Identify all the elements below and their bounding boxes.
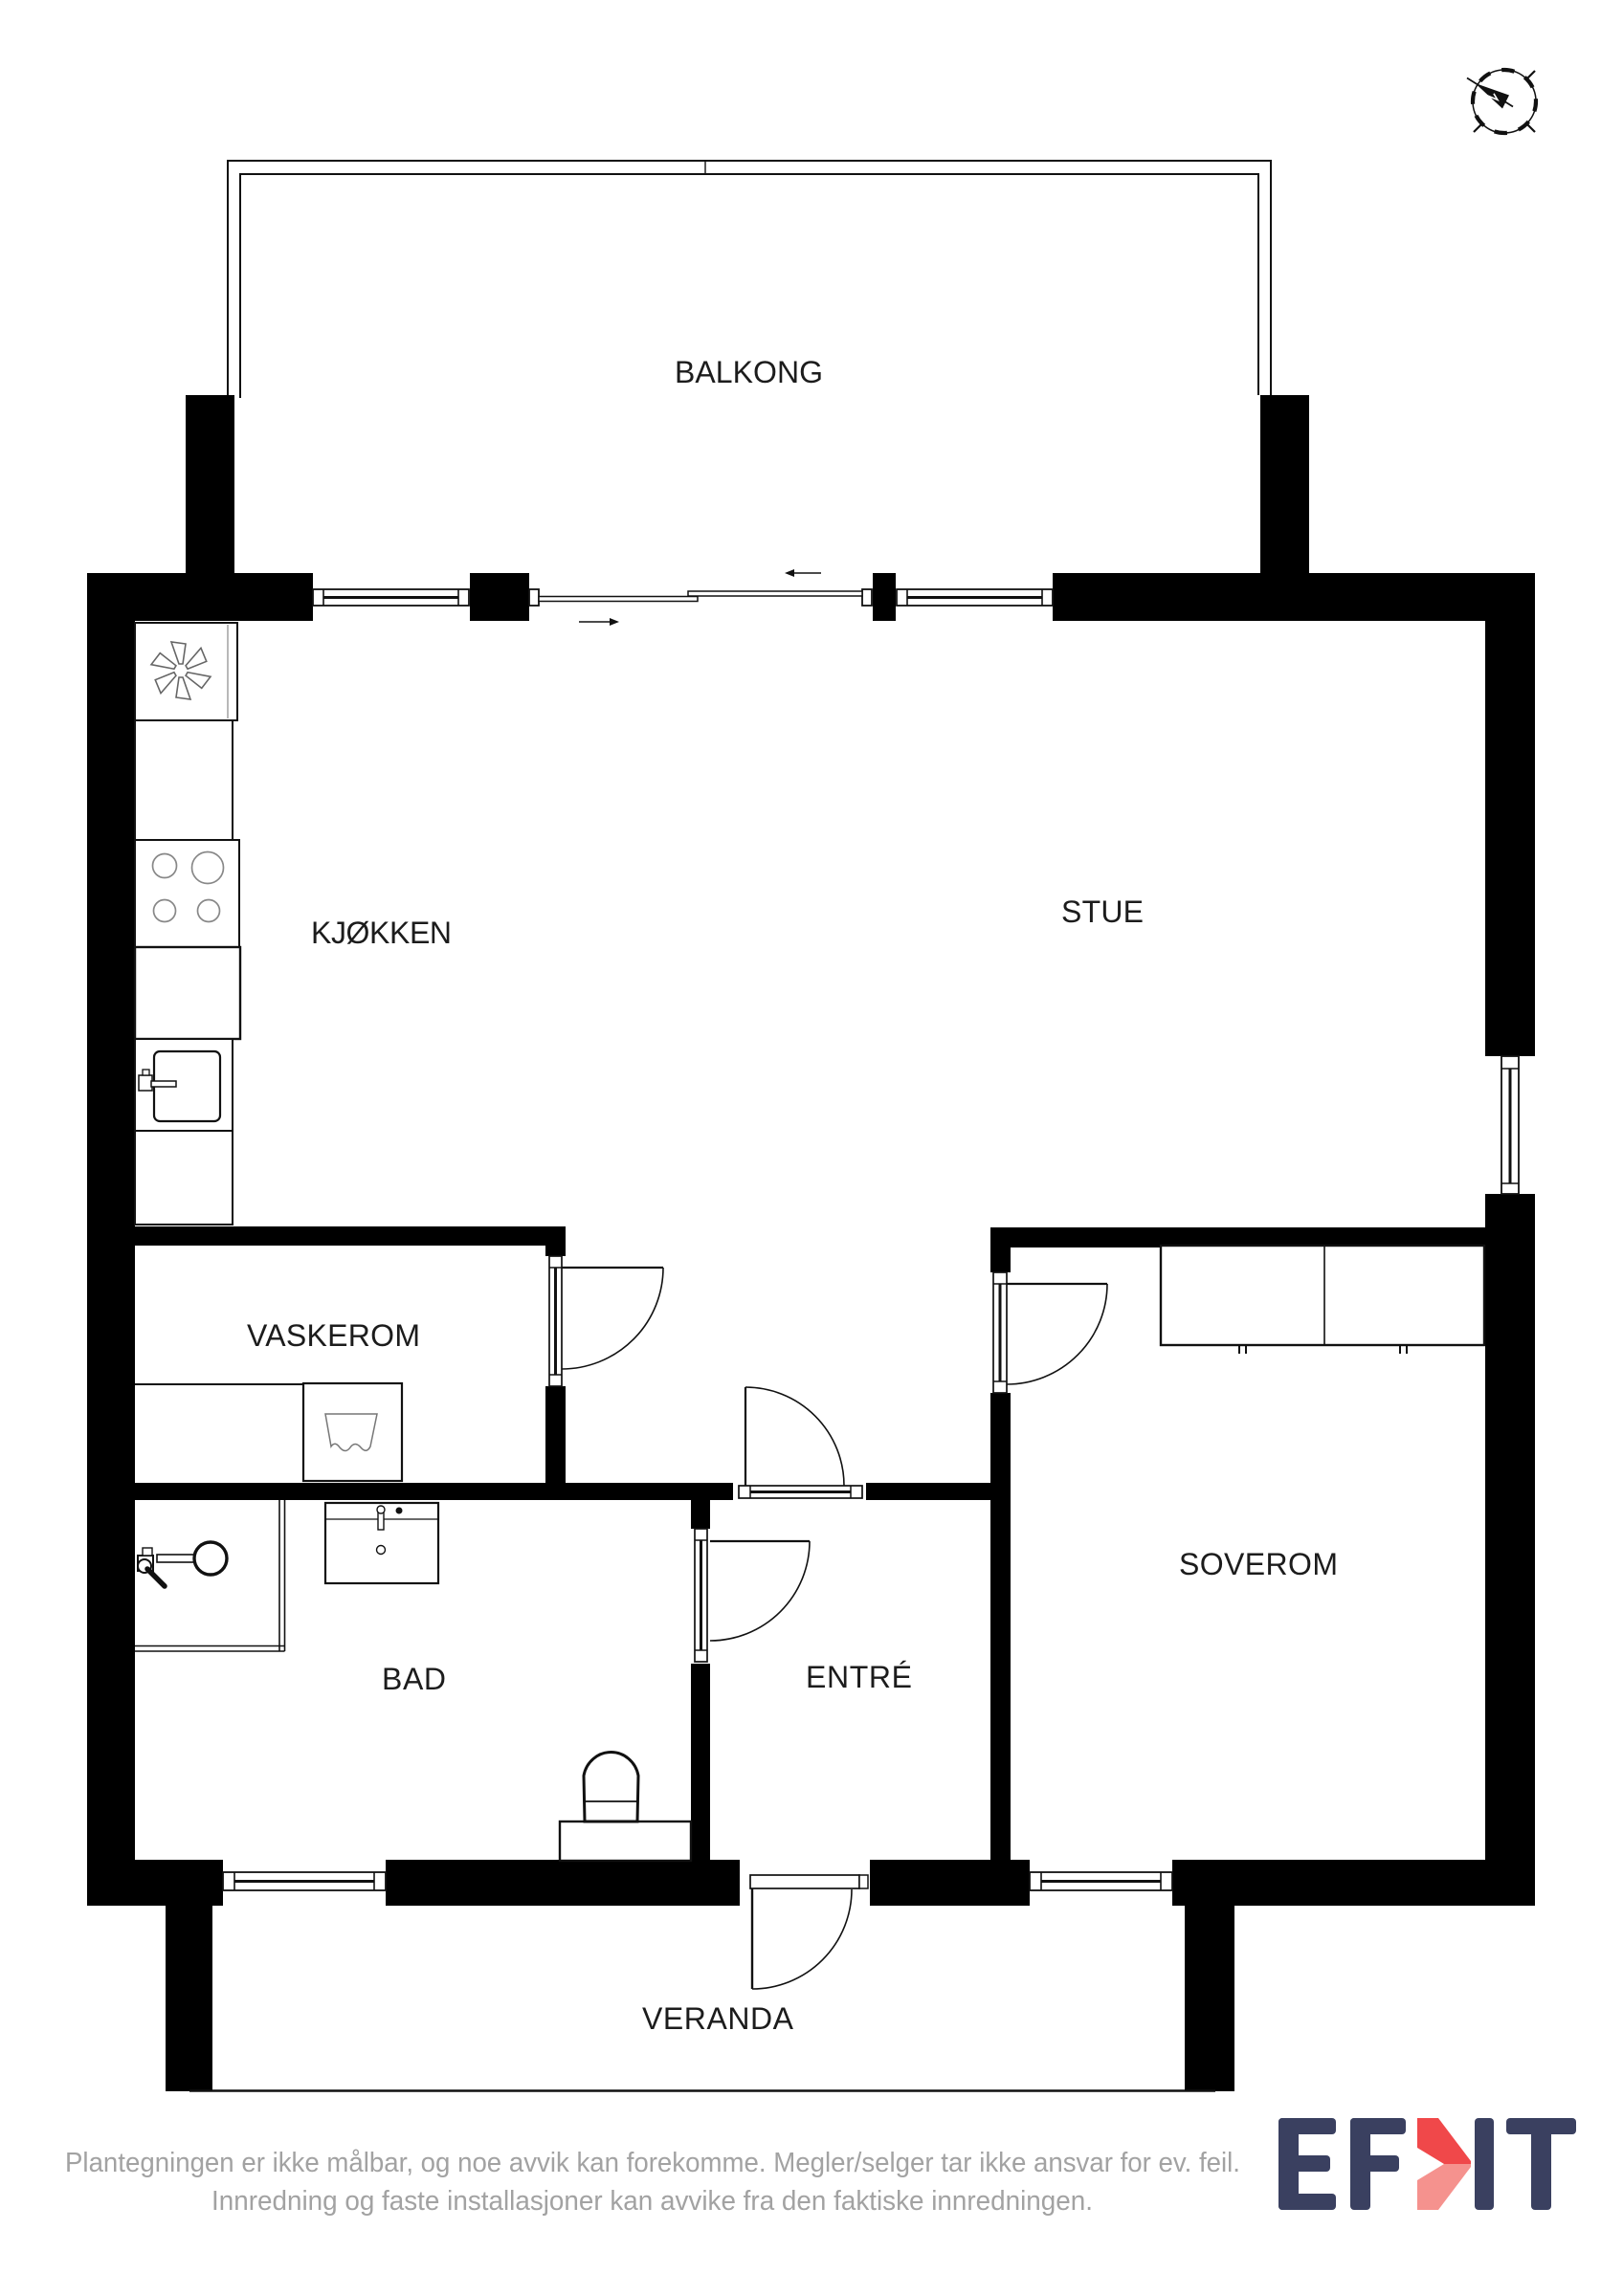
svg-text:VERANDA: VERANDA [642,2001,794,2036]
svg-text:STUE: STUE [1061,894,1144,929]
svg-text:BALKONG: BALKONG [675,355,823,389]
svg-text:ENTRÉ: ENTRÉ [806,1660,912,1694]
svg-text:Plantegningen er ikke målbar,: Plantegningen er ikke målbar, og noe avv… [65,2148,1240,2178]
svg-text:KJØKKEN: KJØKKEN [311,916,452,950]
svg-text:VASKEROM: VASKEROM [247,1318,420,1353]
svg-text:Innredning og faste installasj: Innredning og faste installasjoner kan a… [211,2186,1093,2217]
svg-text:SOVEROM: SOVEROM [1179,1547,1338,1581]
svg-text:BAD: BAD [382,1662,446,1696]
